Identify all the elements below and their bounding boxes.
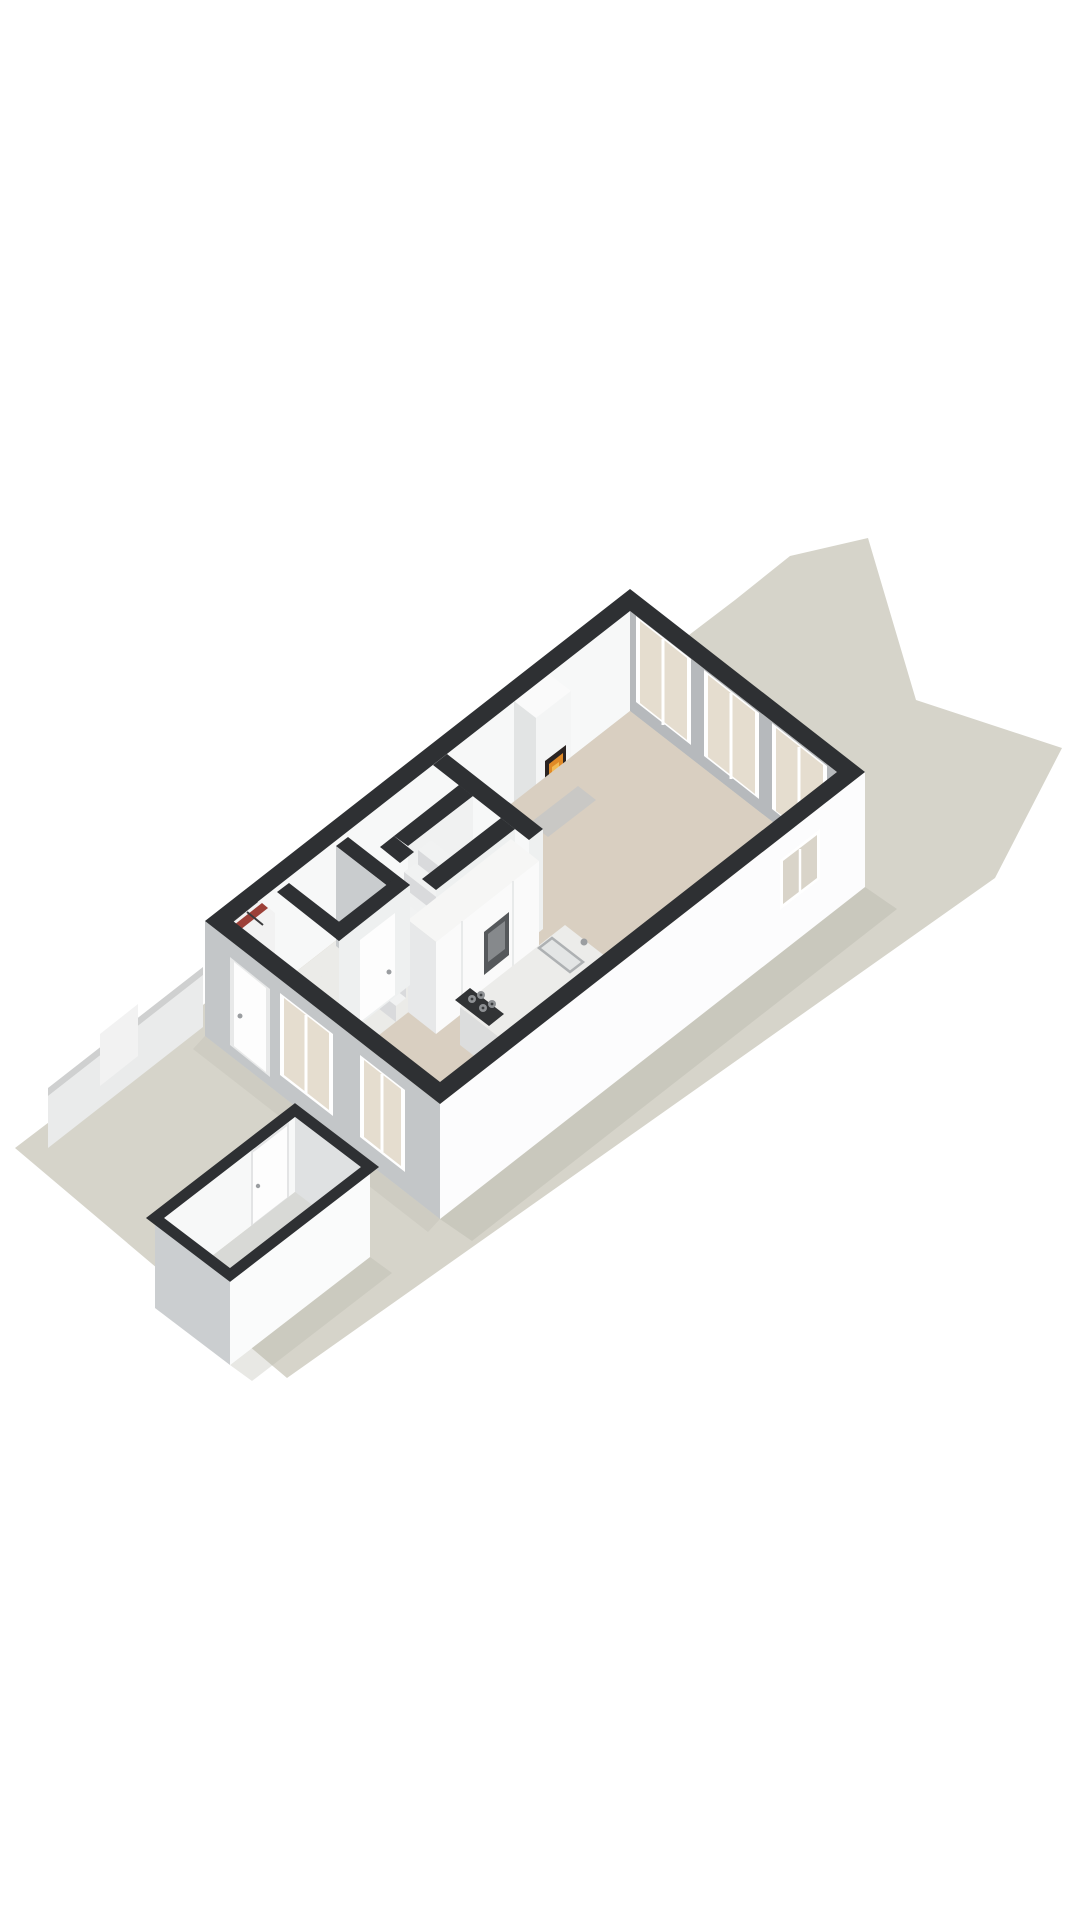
burner-dot xyxy=(480,994,483,997)
floorplan-3d-canvas[interactable] xyxy=(0,0,1080,1920)
burner-dot xyxy=(482,1007,485,1010)
front-door-handle xyxy=(238,1014,243,1019)
faucet xyxy=(581,939,588,946)
burner-dot xyxy=(491,1003,494,1006)
shed-door-handle xyxy=(256,1184,260,1188)
burner-dot xyxy=(471,998,474,1001)
wc-door-handle xyxy=(387,970,392,975)
floorplan-3d-scene xyxy=(0,0,1080,1920)
